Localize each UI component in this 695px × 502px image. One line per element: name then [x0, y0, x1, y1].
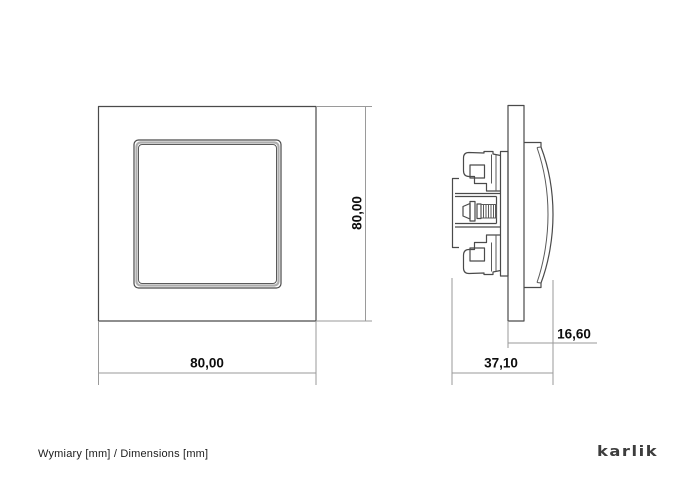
side-frame-plate [508, 106, 524, 322]
front-height-dimension-label: 80,00 [350, 196, 365, 230]
side-rocker-profile [524, 143, 553, 288]
screw-thread-hatching [484, 205, 496, 218]
front-view [99, 107, 317, 322]
technical-drawing-sheet: 80,00 80,00 [0, 0, 695, 502]
dimensions-caption: Wymiary [mm] / Dimensions [mm] [38, 448, 208, 460]
side-view [453, 106, 554, 322]
side-total-depth-label: 37,10 [484, 356, 518, 371]
karlik-logo: karlik [597, 443, 658, 460]
side-front-depth-label: 16,60 [557, 327, 591, 342]
mechanism-top-claw [464, 152, 501, 192]
front-frame-outline [99, 107, 317, 322]
front-width-dimension-label: 80,00 [190, 356, 224, 371]
mechanism-flange [501, 152, 509, 277]
mechanism-screw [463, 202, 497, 222]
side-mechanism [453, 152, 509, 277]
technical-drawing: 80,00 80,00 [0, 0, 695, 502]
mechanism-bottom-claw [464, 235, 501, 275]
